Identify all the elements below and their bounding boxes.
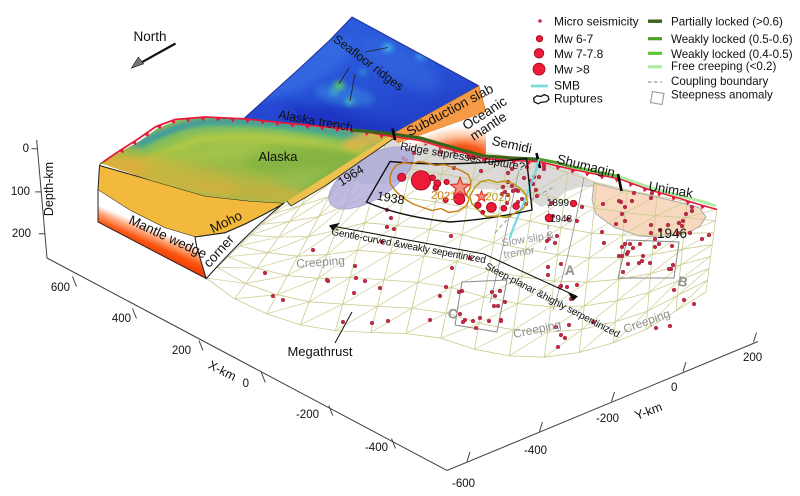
svg-text:C: C [446,305,459,322]
svg-text:Creeping: Creeping [512,317,563,341]
svg-text:Creeping: Creeping [621,306,672,336]
svg-text:1946: 1946 [657,226,687,241]
svg-text:Gentle-curved &weakly sepentin: Gentle-curved &weakly sepentinized [330,227,486,266]
svg-text:0: 0 [23,143,29,155]
svg-text:B: B [676,273,689,290]
svg-text:Mw 7-7.8: Mw 7-7.8 [554,47,604,61]
svg-text:0: 0 [243,378,249,390]
svg-text:-400: -400 [365,442,388,454]
svg-text:Mw >8: Mw >8 [554,63,590,77]
svg-text:A: A [565,263,575,278]
svg-text:-200: -200 [596,413,619,425]
svg-text:-200: -200 [296,409,319,421]
svg-text:200: 200 [172,345,191,357]
svg-text:Coupling boundary: Coupling boundary [671,75,769,88]
svg-text:Y-km: Y-km [633,400,664,423]
svg-text:-400: -400 [524,445,547,457]
svg-text:X-km: X-km [206,358,238,384]
svg-text:1938: 1938 [376,189,406,208]
svg-text:-600: -600 [452,478,475,490]
svg-text:Megathrust: Megathrust [287,344,352,359]
svg-text:100: 100 [11,186,30,198]
svg-text:200: 200 [743,352,762,364]
svg-text:200: 200 [12,228,31,240]
svg-text:Micro seismicity: Micro seismicity [554,15,639,29]
svg-text:Semidi: Semidi [491,133,534,156]
svg-text:Weakly locked (0.4-0.5): Weakly locked (0.4-0.5) [671,48,793,61]
svg-text:Steepness anomaly: Steepness anomaly [671,89,773,102]
svg-text:Partially locked (>0.6): Partially locked (>0.6) [671,16,783,29]
svg-text:1948: 1948 [550,214,573,225]
svg-text:2020: 2020 [485,191,511,205]
svg-text:Alaska: Alaska [258,149,298,164]
svg-text:North: North [133,29,166,44]
svg-text:600: 600 [51,282,70,294]
svg-text:Creeping: Creeping [296,253,346,270]
svg-text:400: 400 [112,313,131,325]
svg-text:Mw 6-7: Mw 6-7 [554,32,594,46]
svg-text:Depth-km: Depth-km [42,162,56,216]
svg-text:2021: 2021 [431,190,457,204]
svg-text:0: 0 [671,382,677,394]
svg-text:Weakly locked (0.5-0.6): Weakly locked (0.5-0.6) [671,33,793,46]
svg-text:SMB: SMB [554,79,580,93]
svg-text:Ruptures: Ruptures [554,92,603,106]
svg-text:1899: 1899 [547,198,570,209]
svg-text:Free creeping (<0.2): Free creeping (<0.2) [671,60,777,73]
